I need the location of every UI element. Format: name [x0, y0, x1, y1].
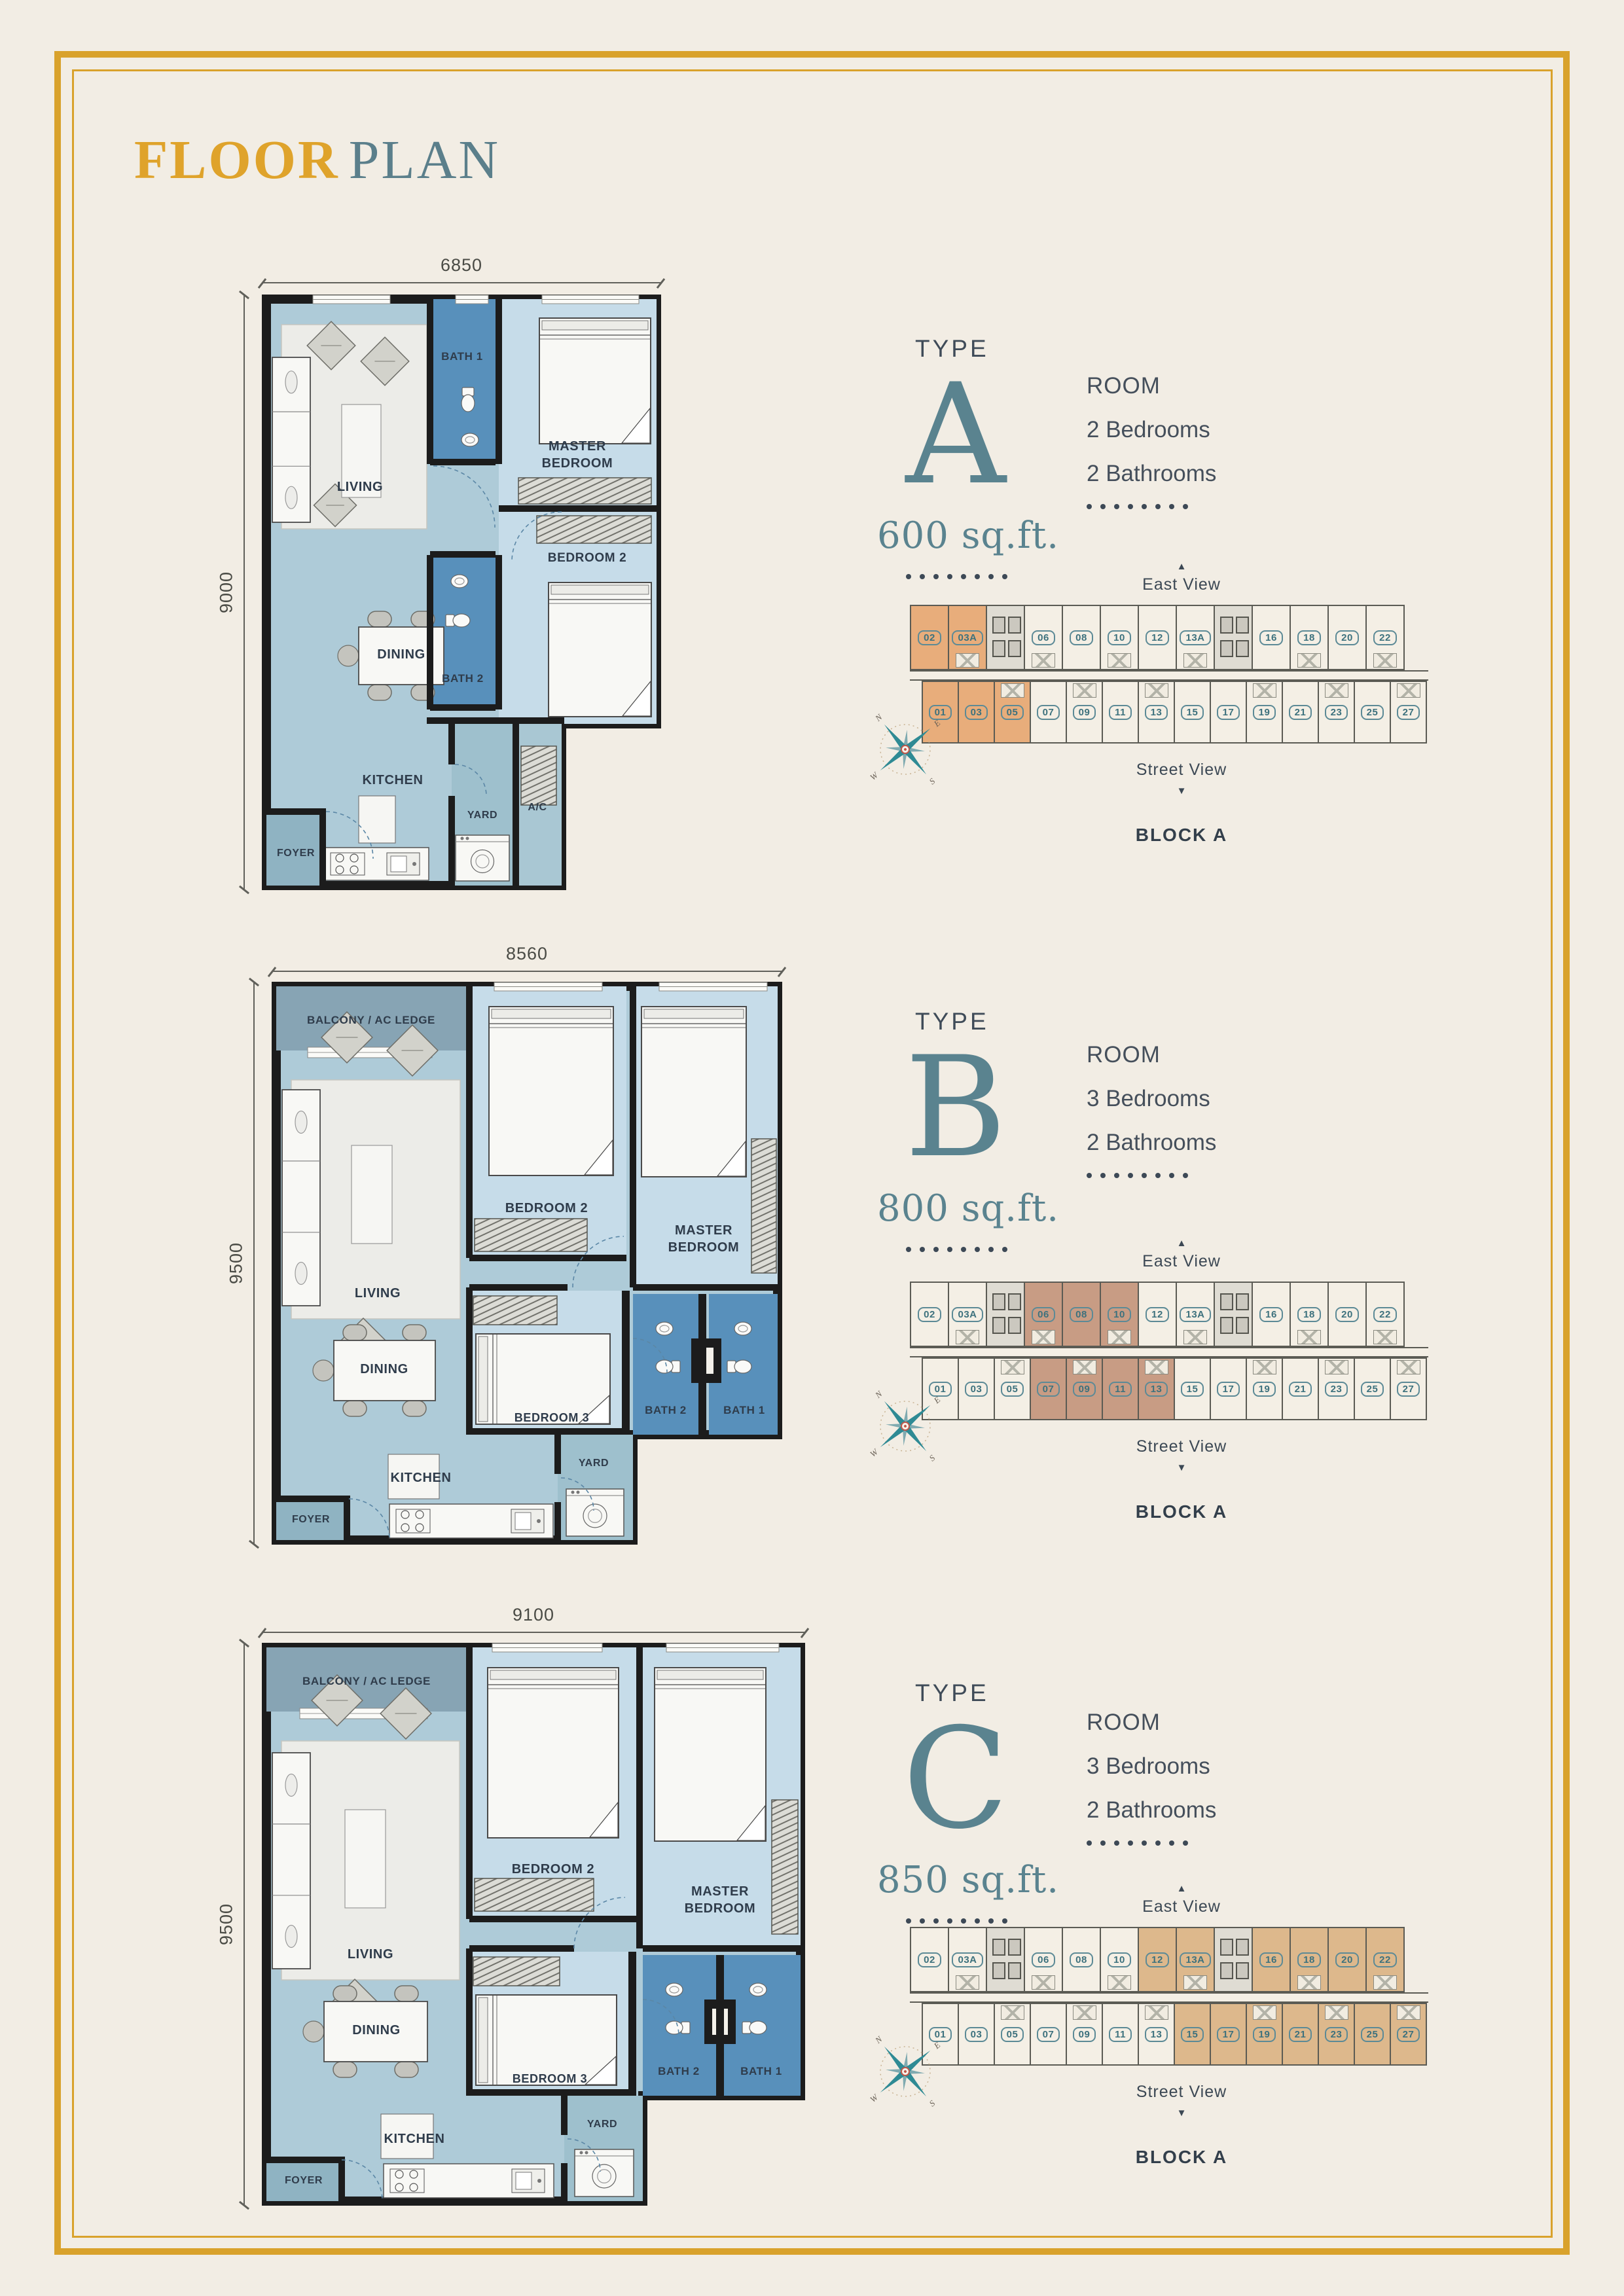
unit-number-25: 25	[1361, 1382, 1384, 1397]
ac-ledge-hatch	[1073, 2005, 1096, 2020]
lift-core	[1214, 605, 1253, 670]
svg-text:W: W	[868, 2092, 880, 2104]
unit-number-18: 18	[1297, 1307, 1321, 1322]
floor-plan-type-b: BALCONY / AC LEDGELIVINGBEDROOM 2MASTERB…	[272, 982, 782, 1545]
unit-number-03: 03	[965, 2027, 988, 2042]
unit-number-25: 25	[1361, 705, 1384, 720]
unit-number-15: 15	[1181, 1382, 1204, 1397]
dimension-width-b-value: 8560	[272, 944, 782, 964]
unit-23: 23	[1318, 1357, 1355, 1420]
unit-05: 05	[994, 1357, 1031, 1420]
dimension-height-a: 9000	[208, 295, 245, 890]
unit-12: 12	[1138, 1927, 1177, 1992]
title-word-plan: PLAN	[349, 130, 500, 190]
lift-icon	[1220, 1939, 1233, 1956]
unit-11: 11	[1102, 2003, 1139, 2066]
east-view-arrow-icon: ▲	[910, 1884, 1453, 1893]
type-letter-a: A	[877, 364, 1034, 505]
bedrooms-count: 2 Bedrooms	[1087, 417, 1216, 443]
dimension-width-c: 9100	[262, 1605, 805, 1633]
ac-ledge-hatch	[1145, 2005, 1168, 2020]
ac-ledge-hatch	[1032, 1330, 1055, 1344]
lift-icon	[1220, 617, 1233, 634]
unit-number-18: 18	[1297, 630, 1321, 645]
unit-number-16: 16	[1259, 630, 1283, 645]
dimension-height-a-value: 9000	[217, 571, 237, 613]
unit-13A: 13A	[1176, 1282, 1215, 1347]
bathrooms-count: 2 Bathrooms	[1087, 1797, 1216, 1823]
unit-13: 13	[1138, 681, 1175, 744]
unit-19: 19	[1246, 1357, 1283, 1420]
room-label-yard: YARD	[579, 1458, 609, 1469]
ac-ledge-hatch	[1032, 1975, 1055, 1990]
type-info-a: TYPE A 600 sq.ft.	[877, 335, 1087, 579]
unit-17: 17	[1210, 681, 1247, 744]
unit-16: 16	[1252, 1927, 1291, 1992]
unit-number-06: 06	[1032, 1952, 1055, 1967]
room-label-bedroom2: BEDROOM 2	[505, 1201, 588, 1215]
unit-number-10: 10	[1108, 1307, 1131, 1322]
unit-number-13A: 13A	[1180, 1307, 1210, 1322]
unit-number-03A: 03A	[952, 630, 983, 645]
unit-18: 18	[1290, 1927, 1329, 1992]
unit-number-13: 13	[1145, 705, 1168, 720]
unit-03: 03	[958, 681, 995, 744]
unit-23: 23	[1318, 681, 1355, 744]
ac-ledge-hatch	[1108, 1330, 1131, 1344]
room-header: ROOM	[1087, 1042, 1216, 1068]
lift-icon	[1220, 1293, 1233, 1310]
stair-icon	[992, 1962, 1005, 1979]
ac-ledge-hatch	[1397, 1360, 1420, 1374]
unit-02: 02	[910, 605, 949, 670]
unit-number-22: 22	[1373, 1952, 1397, 1967]
unit-number-05: 05	[1001, 1382, 1024, 1397]
ac-ledge-hatch	[1253, 2005, 1276, 2020]
unit-13A: 13A	[1176, 605, 1215, 670]
unit-number-23: 23	[1325, 1382, 1348, 1397]
unit-22: 22	[1365, 605, 1405, 670]
stair-icon	[1220, 1962, 1233, 1979]
dimension-line	[262, 1632, 805, 1633]
stair-icon	[1220, 1317, 1233, 1334]
dotted-divider	[1087, 1840, 1216, 1846]
unit-03: 03	[958, 1357, 995, 1420]
unit-number-17: 17	[1217, 1382, 1240, 1397]
unit-03: 03	[958, 2003, 995, 2066]
stair-icon	[1236, 1317, 1249, 1334]
unit-05: 05	[994, 681, 1031, 744]
lift-icon	[992, 1939, 1005, 1956]
room-label-bath1: BATH 1	[723, 1404, 765, 1416]
room-label-kitchen: KITCHEN	[384, 2132, 444, 2146]
ac-ledge-hatch	[1397, 2005, 1420, 2020]
unit-number-20: 20	[1335, 1307, 1359, 1322]
street-view-label: Street View	[910, 1437, 1453, 1456]
ac-ledge-hatch	[1001, 2005, 1024, 2020]
unit-20: 20	[1327, 605, 1367, 670]
lift-core	[1214, 1927, 1253, 1992]
bedrooms-count: 3 Bedrooms	[1087, 1753, 1216, 1780]
unit-22: 22	[1365, 1282, 1405, 1347]
unit-17: 17	[1210, 1357, 1247, 1420]
floor-plan-a-svg: LIVINGBATH 1MASTERBEDROOMBEDROOM 2DINING…	[262, 295, 661, 890]
unit-number-08: 08	[1070, 1307, 1093, 1322]
ac-ledge-hatch	[1001, 1360, 1024, 1374]
room-label-foyer: FOYER	[285, 2175, 323, 2186]
east-view-label: East View	[910, 1252, 1453, 1271]
unit-18: 18	[1290, 1282, 1329, 1347]
street-view-arrow-icon: ▼	[910, 1463, 1453, 1473]
lift-icon	[1008, 1939, 1021, 1956]
unit-number-15: 15	[1181, 2027, 1204, 2042]
ac-ledge-hatch	[1183, 1975, 1207, 1990]
unit-12: 12	[1138, 605, 1177, 670]
unit-number-13: 13	[1145, 2027, 1168, 2042]
room-info-a: ROOM 2 Bedrooms 2 Bathrooms	[1087, 373, 1216, 509]
ac-ledge-hatch	[1253, 683, 1276, 698]
unit-20: 20	[1327, 1282, 1367, 1347]
dimension-line	[244, 295, 245, 890]
stair-icon	[992, 1317, 1005, 1334]
room-label-bath2: BATH 2	[442, 672, 484, 685]
compass-icon: NE SW	[856, 2022, 954, 2121]
room-label-bath2: BATH 2	[645, 1404, 687, 1416]
room-label-yard: YARD	[467, 810, 497, 821]
unit-number-03: 03	[965, 1382, 988, 1397]
unit-number-05: 05	[1001, 2027, 1024, 2042]
dimension-width-c-value: 9100	[262, 1605, 805, 1625]
unit-18: 18	[1290, 605, 1329, 670]
stair-icon	[1236, 1962, 1249, 1979]
stair-icon	[1236, 640, 1249, 657]
block-diagram-a: ▲ East View 0203A 0608101213A 16182022 0…	[910, 562, 1453, 846]
block-label: BLOCK A	[910, 825, 1453, 846]
ac-ledge-hatch	[1108, 653, 1131, 668]
room-header: ROOM	[1087, 1710, 1216, 1736]
unit-17: 17	[1210, 2003, 1247, 2066]
corridor	[910, 1992, 1428, 2003]
unit-number-06: 06	[1032, 1307, 1055, 1322]
room-header: ROOM	[1087, 373, 1216, 399]
block-diagram-c: ▲ East View 0203A 0608101213A 16182022 0…	[910, 1884, 1453, 2168]
dimension-line	[262, 282, 661, 283]
unit-11: 11	[1102, 681, 1139, 744]
floor-plan-type-a: LIVINGBATH 1MASTERBEDROOMBEDROOM 2DINING…	[262, 295, 661, 890]
east-view-arrow-icon: ▲	[910, 562, 1453, 571]
unit-07: 07	[1030, 2003, 1067, 2066]
unit-03A: 03A	[948, 1282, 987, 1347]
unit-19: 19	[1246, 681, 1283, 744]
room-label-kitchen: KITCHEN	[390, 1471, 451, 1485]
lift-icon	[1008, 1293, 1021, 1310]
unit-07: 07	[1030, 681, 1067, 744]
unit-number-07: 07	[1037, 2027, 1060, 2042]
room-label-balcony: BALCONY / AC LEDGE	[302, 1675, 431, 1687]
unit-05: 05	[994, 2003, 1031, 2066]
unit-number-25: 25	[1361, 2027, 1384, 2042]
unit-15: 15	[1174, 1357, 1211, 1420]
dimension-height-c-value: 9500	[217, 1903, 237, 1945]
ac-ledge-hatch	[1073, 683, 1096, 698]
unit-21: 21	[1282, 1357, 1319, 1420]
dimension-width-b: 8560	[272, 944, 782, 972]
unit-number-16: 16	[1259, 1307, 1283, 1322]
room-label-living: LIVING	[348, 1947, 393, 1962]
east-view-label: East View	[910, 575, 1453, 594]
block-label: BLOCK A	[910, 1501, 1453, 1522]
unit-11: 11	[1102, 1357, 1139, 1420]
unit-number-05: 05	[1001, 705, 1024, 720]
corridor	[910, 1347, 1428, 1357]
unit-20: 20	[1327, 1927, 1367, 1992]
unit-number-08: 08	[1070, 630, 1093, 645]
unit-rows: 0203A 0608101213A 16182022 0103050709111…	[910, 605, 1453, 744]
unit-09: 09	[1066, 681, 1103, 744]
unit-09: 09	[1066, 1357, 1103, 1420]
stair-icon	[1008, 1962, 1021, 1979]
unit-10: 10	[1100, 1927, 1139, 1992]
room-label-dining: DINING	[360, 1362, 408, 1376]
unit-27: 27	[1390, 1357, 1427, 1420]
svg-text:E: E	[931, 718, 943, 729]
svg-text:N: N	[873, 1388, 884, 1401]
unit-02: 02	[910, 1927, 949, 1992]
ac-ledge-hatch	[1373, 1330, 1397, 1344]
ac-ledge-hatch	[956, 1975, 979, 1990]
unit-number-21: 21	[1289, 1382, 1312, 1397]
ac-ledge-hatch	[1297, 1975, 1321, 1990]
svg-text:N: N	[873, 2034, 884, 2046]
unit-number-10: 10	[1108, 630, 1131, 645]
stair-icon	[1008, 1317, 1021, 1334]
ac-ledge-hatch	[1297, 653, 1321, 668]
ac-ledge-hatch	[1325, 1360, 1348, 1374]
street-view-label: Street View	[910, 2083, 1453, 2102]
ac-ledge-hatch	[1108, 1975, 1131, 1990]
room-label-balcony: BALCONY / AC LEDGE	[307, 1014, 435, 1026]
dimension-width-a: 6850	[262, 255, 661, 283]
unit-rows: 0203A 0608101213A 16182022 0103050709111…	[910, 1282, 1453, 1420]
unit-number-27: 27	[1397, 1382, 1420, 1397]
unit-number-22: 22	[1373, 1307, 1397, 1322]
unit-number-15: 15	[1181, 705, 1204, 720]
lift-icon	[1236, 1293, 1249, 1310]
unit-08: 08	[1062, 1282, 1101, 1347]
dimension-height-b-value: 9500	[226, 1242, 247, 1284]
unit-number-20: 20	[1335, 630, 1359, 645]
unit-25: 25	[1354, 1357, 1391, 1420]
unit-06: 06	[1024, 605, 1063, 670]
type-letter-c: C	[877, 1708, 1034, 1850]
type-area-b: 800 sq.ft.	[877, 1187, 1087, 1230]
unit-13A: 13A	[1176, 1927, 1215, 1992]
type-letter-b: B	[877, 1037, 1034, 1178]
unit-21: 21	[1282, 681, 1319, 744]
bathrooms-count: 2 Bathrooms	[1087, 461, 1216, 487]
ac-ledge-hatch	[1325, 683, 1348, 698]
unit-16: 16	[1252, 1282, 1291, 1347]
room-label-dining: DINING	[377, 647, 425, 662]
unit-27: 27	[1390, 2003, 1427, 2066]
unit-number-07: 07	[1037, 705, 1060, 720]
unit-number-16: 16	[1259, 1952, 1283, 1967]
ac-ledge-hatch	[1325, 2005, 1348, 2020]
unit-number-02: 02	[918, 1952, 941, 1967]
room-info-b: ROOM 3 Bedrooms 2 Bathrooms	[1087, 1042, 1216, 1178]
unit-number-03A: 03A	[952, 1952, 983, 1967]
unit-19: 19	[1246, 2003, 1283, 2066]
room-label-bedroom2: BEDROOM 2	[548, 551, 626, 565]
ac-ledge-hatch	[1001, 683, 1024, 698]
ac-ledge-hatch	[1073, 1360, 1096, 1374]
room-label-bedroom3: BEDROOM 3	[513, 2072, 587, 2085]
svg-text:S: S	[928, 1452, 937, 1463]
unit-number-06: 06	[1032, 630, 1055, 645]
unit-number-10: 10	[1108, 1952, 1131, 1967]
room-label-bath1: BATH 1	[740, 2065, 782, 2077]
unit-03A: 03A	[948, 605, 987, 670]
unit-21: 21	[1282, 2003, 1319, 2066]
unit-13: 13	[1138, 2003, 1175, 2066]
bathrooms-count: 2 Bathrooms	[1087, 1130, 1216, 1156]
bedrooms-count: 3 Bedrooms	[1087, 1086, 1216, 1112]
ac-ledge-hatch	[1297, 1330, 1321, 1344]
svg-text:E: E	[931, 1395, 943, 1406]
unit-15: 15	[1174, 681, 1211, 744]
room-label-foyer: FOYER	[277, 848, 315, 859]
dotted-divider	[1087, 504, 1216, 509]
unit-number-07: 07	[1037, 1382, 1060, 1397]
unit-13: 13	[1138, 1357, 1175, 1420]
unit-25: 25	[1354, 2003, 1391, 2066]
compass-icon: NE SW	[856, 1377, 954, 1475]
room-label-living: LIVING	[355, 1286, 401, 1300]
ac-ledge-hatch	[1145, 683, 1168, 698]
corridor	[910, 670, 1428, 681]
svg-text:S: S	[928, 776, 937, 786]
lift-core	[986, 1927, 1025, 1992]
floor-plan-c-svg: BALCONY / AC LEDGELIVINGBEDROOM 2MASTERB…	[262, 1643, 805, 2206]
unit-23: 23	[1318, 2003, 1355, 2066]
unit-number-19: 19	[1253, 1382, 1276, 1397]
unit-number-09: 09	[1073, 1382, 1096, 1397]
unit-06: 06	[1024, 1927, 1063, 1992]
dimension-line	[253, 982, 255, 1545]
unit-number-18: 18	[1297, 1952, 1321, 1967]
street-view-label: Street View	[910, 761, 1453, 780]
floor-plan-type-c: BALCONY / AC LEDGELIVINGBEDROOM 2MASTERB…	[262, 1643, 805, 2206]
ac-ledge-hatch	[1183, 653, 1207, 668]
room-label-kitchen: KITCHEN	[362, 773, 423, 787]
stair-icon	[992, 640, 1005, 657]
unit-10: 10	[1100, 1282, 1139, 1347]
lift-core	[986, 1282, 1025, 1347]
dimension-height-b: 9500	[218, 982, 255, 1545]
unit-09: 09	[1066, 2003, 1103, 2066]
east-view-label: East View	[910, 1897, 1453, 1916]
room-info-c: ROOM 3 Bedrooms 2 Bathrooms	[1087, 1710, 1216, 1846]
unit-number-22: 22	[1373, 630, 1397, 645]
unit-rows: 0203A 0608101213A 16182022 0103050709111…	[910, 1927, 1453, 2066]
unit-16: 16	[1252, 605, 1291, 670]
unit-number-12: 12	[1146, 630, 1169, 645]
room-label-ac: A/C	[528, 802, 547, 813]
unit-number-08: 08	[1070, 1952, 1093, 1967]
svg-text:S: S	[928, 2098, 937, 2108]
unit-02: 02	[910, 1282, 949, 1347]
unit-number-19: 19	[1253, 2027, 1276, 2042]
unit-number-23: 23	[1325, 2027, 1348, 2042]
lift-icon	[992, 617, 1005, 634]
dimension-line	[272, 971, 782, 972]
type-area-a: 600 sq.ft.	[877, 514, 1087, 557]
unit-07: 07	[1030, 1357, 1067, 1420]
unit-08: 08	[1062, 605, 1101, 670]
dotted-divider	[1087, 1173, 1216, 1178]
ac-ledge-hatch	[1032, 653, 1055, 668]
ac-ledge-hatch	[956, 1330, 979, 1344]
room-label-bath1: BATH 1	[441, 350, 483, 363]
svg-text:E: E	[931, 2040, 943, 2051]
unit-number-13: 13	[1145, 1382, 1168, 1397]
title-word-floor: FLOOR	[134, 130, 340, 190]
unit-27: 27	[1390, 681, 1427, 744]
unit-08: 08	[1062, 1927, 1101, 1992]
unit-03A: 03A	[948, 1927, 987, 1992]
room-label-dining: DINING	[352, 2023, 401, 2037]
ac-ledge-hatch	[1373, 1975, 1397, 1990]
dimension-height-c: 9500	[208, 1643, 245, 2206]
unit-number-12: 12	[1146, 1952, 1169, 1967]
street-view-arrow-icon: ▼	[910, 786, 1453, 796]
dimension-line	[244, 1643, 245, 2206]
unit-number-09: 09	[1073, 2027, 1096, 2042]
ac-ledge-hatch	[1253, 1360, 1276, 1374]
unit-number-17: 17	[1217, 2027, 1240, 2042]
svg-text:W: W	[868, 1446, 880, 1459]
unit-number-12: 12	[1146, 1307, 1169, 1322]
lift-icon	[992, 1293, 1005, 1310]
unit-number-20: 20	[1335, 1952, 1359, 1967]
street-view-arrow-icon: ▼	[910, 2108, 1453, 2118]
unit-number-27: 27	[1397, 705, 1420, 720]
unit-number-02: 02	[918, 1307, 941, 1322]
lift-icon	[1236, 1939, 1249, 1956]
unit-number-21: 21	[1289, 705, 1312, 720]
unit-number-03A: 03A	[952, 1307, 983, 1322]
unit-number-27: 27	[1397, 2027, 1420, 2042]
unit-number-23: 23	[1325, 705, 1348, 720]
dimension-width-a-value: 6850	[262, 255, 661, 276]
unit-number-02: 02	[918, 630, 941, 645]
ac-ledge-hatch	[956, 653, 979, 668]
unit-25: 25	[1354, 681, 1391, 744]
type-info-b: TYPE B 800 sq.ft.	[877, 1008, 1087, 1252]
room-label-bath2: BATH 2	[658, 2065, 700, 2077]
block-label: BLOCK A	[910, 2147, 1453, 2168]
unit-number-21: 21	[1289, 2027, 1312, 2042]
room-label-bedroom2: BEDROOM 2	[512, 1862, 595, 1876]
compass-icon: NE SW	[856, 700, 954, 798]
unit-15: 15	[1174, 2003, 1211, 2066]
unit-number-11: 11	[1109, 1382, 1132, 1397]
ac-ledge-hatch	[1397, 683, 1420, 698]
room-label-foyer: FOYER	[292, 1514, 330, 1525]
lift-core	[1214, 1282, 1253, 1347]
svg-text:W: W	[868, 770, 880, 782]
page-title: FLOORPLAN	[134, 128, 500, 192]
